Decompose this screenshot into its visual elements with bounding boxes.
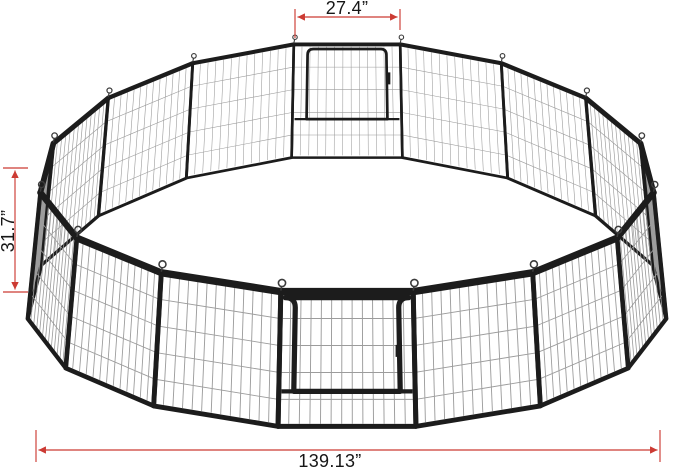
fence-panel (400, 44, 507, 178)
panel-mesh (293, 47, 400, 156)
hook-stem-icon (400, 39, 401, 43)
anchor-hooks (39, 35, 658, 291)
panel-mesh (189, 48, 292, 174)
hook-loop-icon (500, 54, 505, 59)
panel-top-bar (77, 238, 161, 273)
hook-loop-icon (52, 133, 58, 139)
hook-loop-icon (411, 279, 418, 286)
overall-diameter-label: 139.13” (285, 452, 375, 470)
panel-top-bar (193, 44, 294, 63)
fence-panel (154, 273, 281, 427)
panel-mesh (102, 68, 191, 210)
playpen-illustration (0, 0, 679, 470)
hook-loop-icon (584, 88, 589, 93)
fence-panel (533, 238, 629, 406)
hook-stem-icon (108, 93, 109, 97)
hook-stem-icon (586, 93, 587, 97)
back-door-panel (292, 44, 403, 157)
hook-loop-icon (530, 261, 537, 268)
panel-top-bar (108, 63, 192, 98)
fence-panel (501, 63, 595, 216)
panel-frame (278, 292, 416, 427)
door-panel-width-label: 27.4” (307, 0, 387, 17)
hook-stem-icon (193, 58, 194, 62)
panel-top-bar (53, 98, 108, 143)
panel-top-bar (533, 238, 617, 273)
door-frame (307, 49, 388, 119)
hook-stem-icon (294, 39, 295, 43)
panel-top-bar (586, 98, 641, 143)
panel-top-bar (400, 44, 501, 63)
front-door-panel (278, 292, 416, 427)
hook-loop-icon (278, 279, 285, 286)
panel-mesh (157, 277, 279, 422)
panel-mesh (504, 68, 593, 210)
playpen-dimension-diagram: 27.4” 31.7” 139.13” (0, 0, 679, 470)
fence-panel (66, 238, 162, 406)
fence-panel (98, 63, 192, 216)
panel-top-bar (501, 63, 585, 98)
panel-mesh (415, 277, 537, 422)
hook-loop-icon (107, 88, 112, 93)
fence-panel (413, 273, 540, 427)
panel-mesh (402, 48, 505, 174)
hook-stem-icon (501, 58, 502, 62)
door-frame (285, 298, 408, 392)
panel-mesh (280, 294, 413, 423)
hook-loop-icon (639, 133, 645, 139)
hook-loop-icon (399, 35, 403, 39)
hook-loop-icon (159, 261, 166, 268)
panel-height-label: 31.7” (0, 191, 17, 271)
fence-panels (28, 35, 667, 426)
hook-loop-icon (192, 54, 197, 59)
fence-panel (186, 44, 293, 178)
